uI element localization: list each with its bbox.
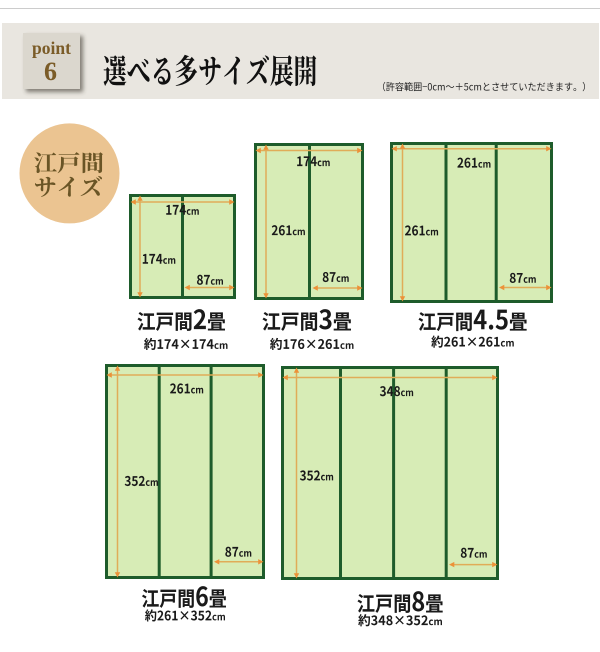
svg-text:point: point [32,38,71,58]
svg-text:6: 6 [44,57,57,86]
